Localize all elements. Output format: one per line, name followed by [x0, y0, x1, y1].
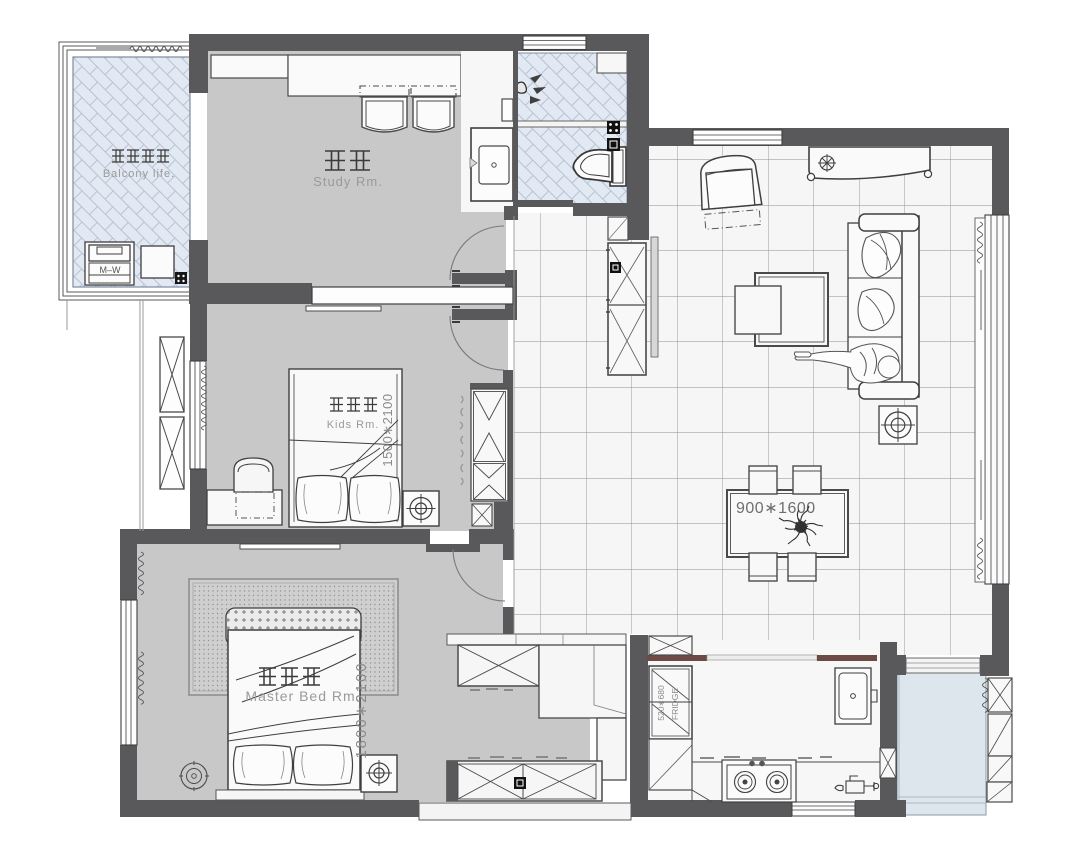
svg-text:M–W: M–W: [100, 265, 122, 275]
svg-text:1500∗2100: 1500∗2100: [380, 393, 395, 466]
svg-text:FRIDGE: FRIDGE: [670, 688, 680, 720]
svg-text:900∗1600: 900∗1600: [736, 500, 816, 517]
svg-text:Balcony life.: Balcony life.: [103, 168, 175, 180]
svg-text:1800∗2100: 1800∗2100: [353, 661, 370, 758]
svg-text:Master Bed Rm.: Master Bed Rm.: [245, 688, 360, 704]
svg-text:Kids Rm.: Kids Rm.: [327, 419, 380, 431]
svg-text:Study Rm.: Study Rm.: [313, 174, 383, 189]
svg-text:520∗680: 520∗680: [656, 685, 666, 721]
